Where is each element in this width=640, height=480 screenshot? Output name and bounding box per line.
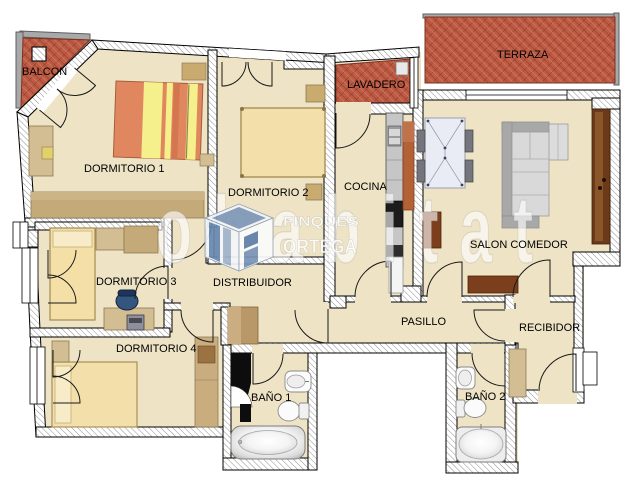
svg-text:DORMITORIO 3: DORMITORIO 3 — [96, 276, 176, 288]
svg-text:DISTRIBUIDOR: DISTRIBUIDOR — [213, 277, 292, 289]
svg-text:ORTEGA: ORTEGA — [283, 237, 357, 258]
svg-text:RECIBIDOR: RECIBIDOR — [519, 322, 580, 334]
svg-text:TERRAZA: TERRAZA — [497, 49, 549, 61]
svg-text:LAVADERO: LAVADERO — [347, 79, 406, 91]
svg-text:FINQUES: FINQUES — [283, 213, 359, 229]
svg-text:COCINA: COCINA — [344, 181, 387, 193]
svg-text:DORMITORIO 2: DORMITORIO 2 — [228, 187, 308, 199]
svg-text:SALON COMEDOR: SALON COMEDOR — [470, 239, 568, 251]
svg-text:BAÑO 2: BAÑO 2 — [465, 390, 505, 403]
svg-text:DORMITORIO 4: DORMITORIO 4 — [116, 343, 196, 355]
svg-text:BAÑO 1: BAÑO 1 — [251, 391, 291, 404]
svg-text:DORMITORIO 1: DORMITORIO 1 — [84, 163, 164, 175]
svg-text:PASILLO: PASILLO — [401, 316, 446, 328]
svg-text:BALCON: BALCON — [22, 66, 67, 78]
